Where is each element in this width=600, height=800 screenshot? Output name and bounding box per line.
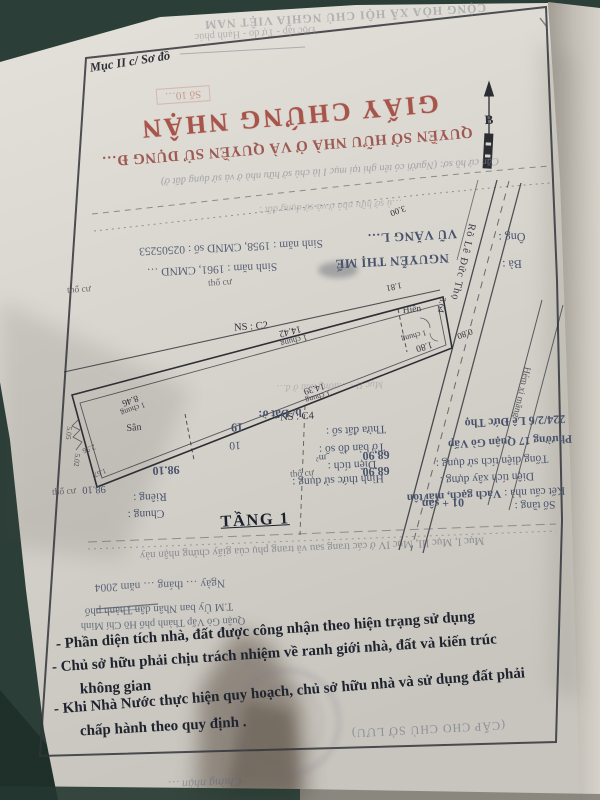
- floor-label: TẦNG 1: [220, 508, 290, 532]
- measure-502: 5.02: [72, 453, 82, 467]
- parcel-value: 19: [231, 419, 244, 435]
- sheet-value: 10: [229, 439, 241, 452]
- private-label: Riêng :: [133, 490, 167, 504]
- shared-label: Chung :: [127, 507, 164, 521]
- certificate-photo: Mục II c/ Sơ đồ B NS : C2 NS : C4 Sân Hi…: [0, 0, 600, 800]
- porch-label: Hiên: [402, 304, 421, 316]
- area-unit: m²: [316, 452, 327, 462]
- floors-label: Số tầng :: [514, 498, 555, 512]
- zone-label-1: thổ cư: [67, 284, 92, 296]
- plot-code-c2: NS : C2: [234, 320, 269, 333]
- private-value: 98.10: [82, 483, 106, 495]
- zone-label-2: thổ cư: [208, 277, 233, 289]
- north-label: B: [484, 112, 493, 128]
- build-area-value: 68.90: [362, 463, 390, 479]
- area-value: 98.10: [152, 462, 180, 478]
- zone-label-3: thổ cư: [52, 486, 77, 498]
- wife-label: Bà :: [502, 256, 522, 272]
- measure-505: 5.05: [64, 426, 74, 440]
- land-section-header: b/ Đất ở:: [258, 406, 302, 420]
- husband-label: Ông :: [498, 229, 526, 245]
- total-area-value: 68.90: [362, 447, 390, 463]
- yard-label: Sân: [126, 422, 142, 434]
- floors-value: 01 + sân: [422, 495, 465, 512]
